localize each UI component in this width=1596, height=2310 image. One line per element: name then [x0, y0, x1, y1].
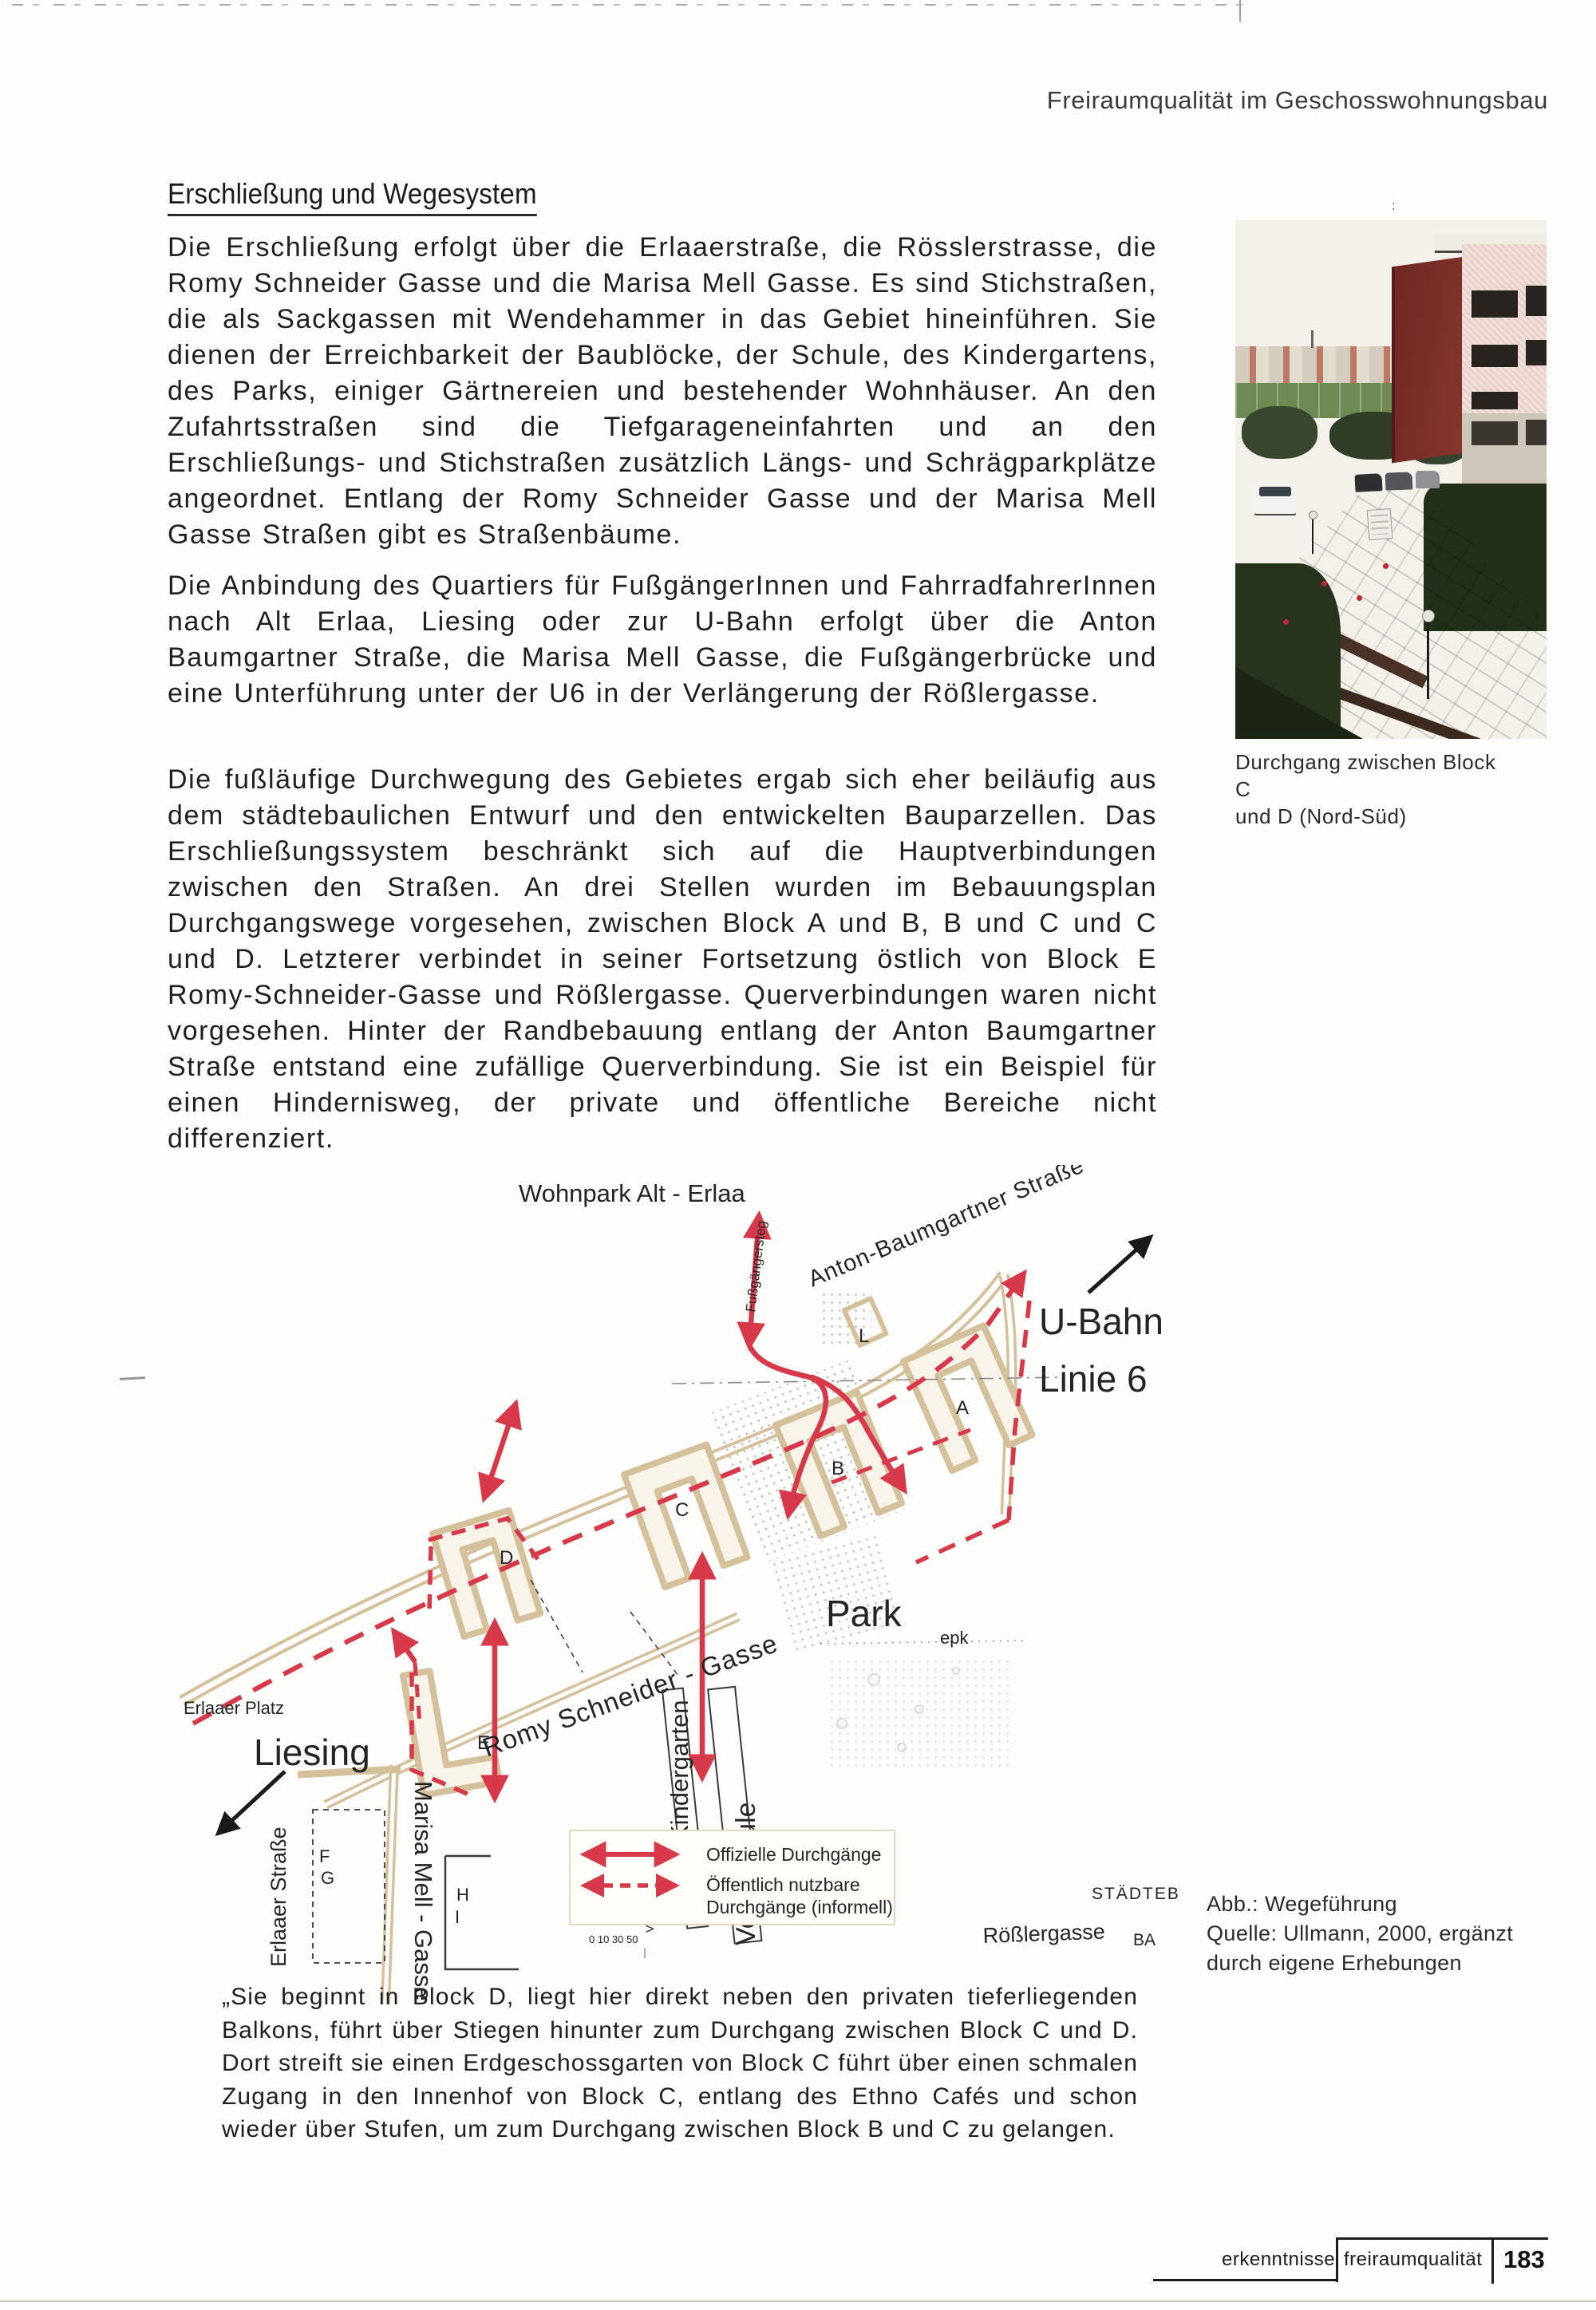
map-label-kindergarten: Kindergarten — [666, 1700, 693, 1842]
scan-bottom-edge-line — [0, 2300, 1596, 2302]
map-label-linie6: Linie 6 — [1039, 1358, 1148, 1400]
footer-topline — [1336, 2237, 1548, 2240]
footer-divider-2 — [1491, 2237, 1494, 2284]
photo-caption-line2: und D (Nord-Süd) — [1235, 804, 1407, 828]
site-map: Wohnpark Alt - Erlaa Fußgängersteg Anton… — [72, 1165, 1189, 2091]
photo-flower — [1357, 595, 1362, 601]
map-label-fussgaengersteg: Fußgängersteg — [743, 1220, 769, 1313]
footer-section: erkenntnisse — [1222, 2249, 1335, 2271]
block-letter-e: E — [477, 1732, 490, 1754]
photo-window — [1472, 290, 1518, 318]
quote-paragraph: „Sie beginnt in Block D, liegt hier dire… — [222, 1980, 1138, 2146]
block-letter-f: F — [319, 1846, 330, 1866]
photo-car — [1385, 472, 1413, 490]
footer-chapter: freiraumqualität — [1344, 2249, 1482, 2271]
photo-flower — [1383, 563, 1389, 569]
map-label-park: Park — [826, 1593, 903, 1634]
liesing-direction-arrow — [219, 1771, 285, 1833]
scan-speck: : — [1392, 199, 1395, 214]
map-label-erlaaer-strasse: Erlaaer Straße — [267, 1826, 290, 1967]
map-label-ubahn: U-Bahn — [1039, 1301, 1163, 1342]
photo-facade-upper — [1462, 244, 1547, 413]
map-label-anton-baumgartner: Anton-Baumgartner Straße — [804, 1165, 1088, 1292]
photo-lamp-globe — [1309, 511, 1317, 519]
block-letter-c: C — [675, 1499, 689, 1521]
photo-window — [1472, 392, 1518, 409]
photo-lamp-globe — [1422, 610, 1435, 622]
map-label-marisa-mell-gasse: Marisa Mell - Gasse — [409, 1781, 437, 2001]
map-label-wohnpark: Wohnpark Alt - Erlaa — [519, 1179, 745, 1207]
photo-van-windshield — [1259, 487, 1291, 496]
paragraph-2: Die Anbindung des Quartiers für Fußgänge… — [168, 568, 1157, 712]
map-label-liesing: Liesing — [254, 1732, 370, 1773]
legend-label-informal-1: Öffentlich nutzbare — [706, 1874, 860, 1895]
figure-caption: Abb.: Wegeführung Quelle: Ullmann, 2000,… — [1207, 1889, 1558, 1978]
photo-caption: Durchgang zwischen Block C und D (Nord-S… — [1235, 748, 1507, 830]
paragraph-1: Die Erschließung erfolgt über die Erlaae… — [168, 230, 1157, 553]
photo-spire — [1311, 330, 1314, 348]
map-label-epk: epk — [940, 1628, 969, 1648]
photo-trees — [1242, 406, 1317, 459]
photo-window — [1526, 286, 1547, 316]
photo-flower — [1283, 619, 1289, 625]
photo-lamp-post — [1427, 619, 1429, 699]
figure-caption-line3: durch eigene Erhebungen — [1207, 1951, 1462, 1975]
scan-top-tick — [1239, 0, 1241, 22]
photo-window — [1526, 340, 1547, 365]
photo-durchgang — [1235, 220, 1547, 739]
map-label-roesslergasse: Rößlergasse — [982, 1920, 1105, 1948]
block-letter-b: B — [832, 1458, 844, 1479]
footer-divider-1 — [1336, 2237, 1338, 2282]
footer-underline — [1153, 2279, 1336, 2281]
map-label-staedteb: STÄDTEB — [1092, 1885, 1180, 1903]
scan-top-edge-line — [12, 4, 1245, 6]
figure-caption-line1: Abb.: Wegeführung — [1207, 1892, 1397, 1916]
block-letter-h: H — [456, 1885, 469, 1905]
ubahn-direction-arrow — [1088, 1238, 1150, 1293]
map-label-ba: BA — [1133, 1931, 1156, 1949]
photo-lamp-post — [1312, 517, 1314, 554]
photo-caption-line1: Durchgang zwischen Block C — [1235, 750, 1496, 801]
section-heading: Erschließung und Wegesystem — [168, 177, 537, 216]
block-letter-d: D — [500, 1547, 513, 1569]
photo-maroon-wall — [1392, 257, 1465, 464]
running-header: Freiraumqualität im Geschosswohnungsbau — [798, 86, 1548, 115]
footer-page-number: 183 — [1503, 2245, 1545, 2274]
block-letter-a: A — [956, 1397, 969, 1419]
paragraph-3: Die fußläufige Durchwegung des Gebietes … — [168, 762, 1157, 1157]
legend-label-informal-2: Durchgänge (informell) — [706, 1897, 893, 1917]
photo-window — [1472, 421, 1518, 445]
photo-window — [1526, 420, 1547, 445]
photo-flower — [1321, 581, 1327, 586]
photo-car — [1354, 473, 1382, 492]
block-letter-g: G — [321, 1868, 334, 1888]
photo-car — [1416, 471, 1440, 488]
map-label-erlaaer-platz: Erlaaer Platz — [184, 1698, 284, 1718]
map-scale-ticks: 0 10 30 50 — [589, 1933, 638, 1945]
block-letter-i: I — [455, 1907, 460, 1927]
figure-caption-line2: Quelle: Ullmann, 2000, ergänzt — [1207, 1921, 1513, 1945]
photo-window — [1472, 345, 1518, 367]
legend-label-official: Offizielle Durchgänge — [706, 1844, 881, 1865]
block-letter-l: L — [859, 1325, 869, 1347]
photo-sign — [1367, 508, 1393, 540]
